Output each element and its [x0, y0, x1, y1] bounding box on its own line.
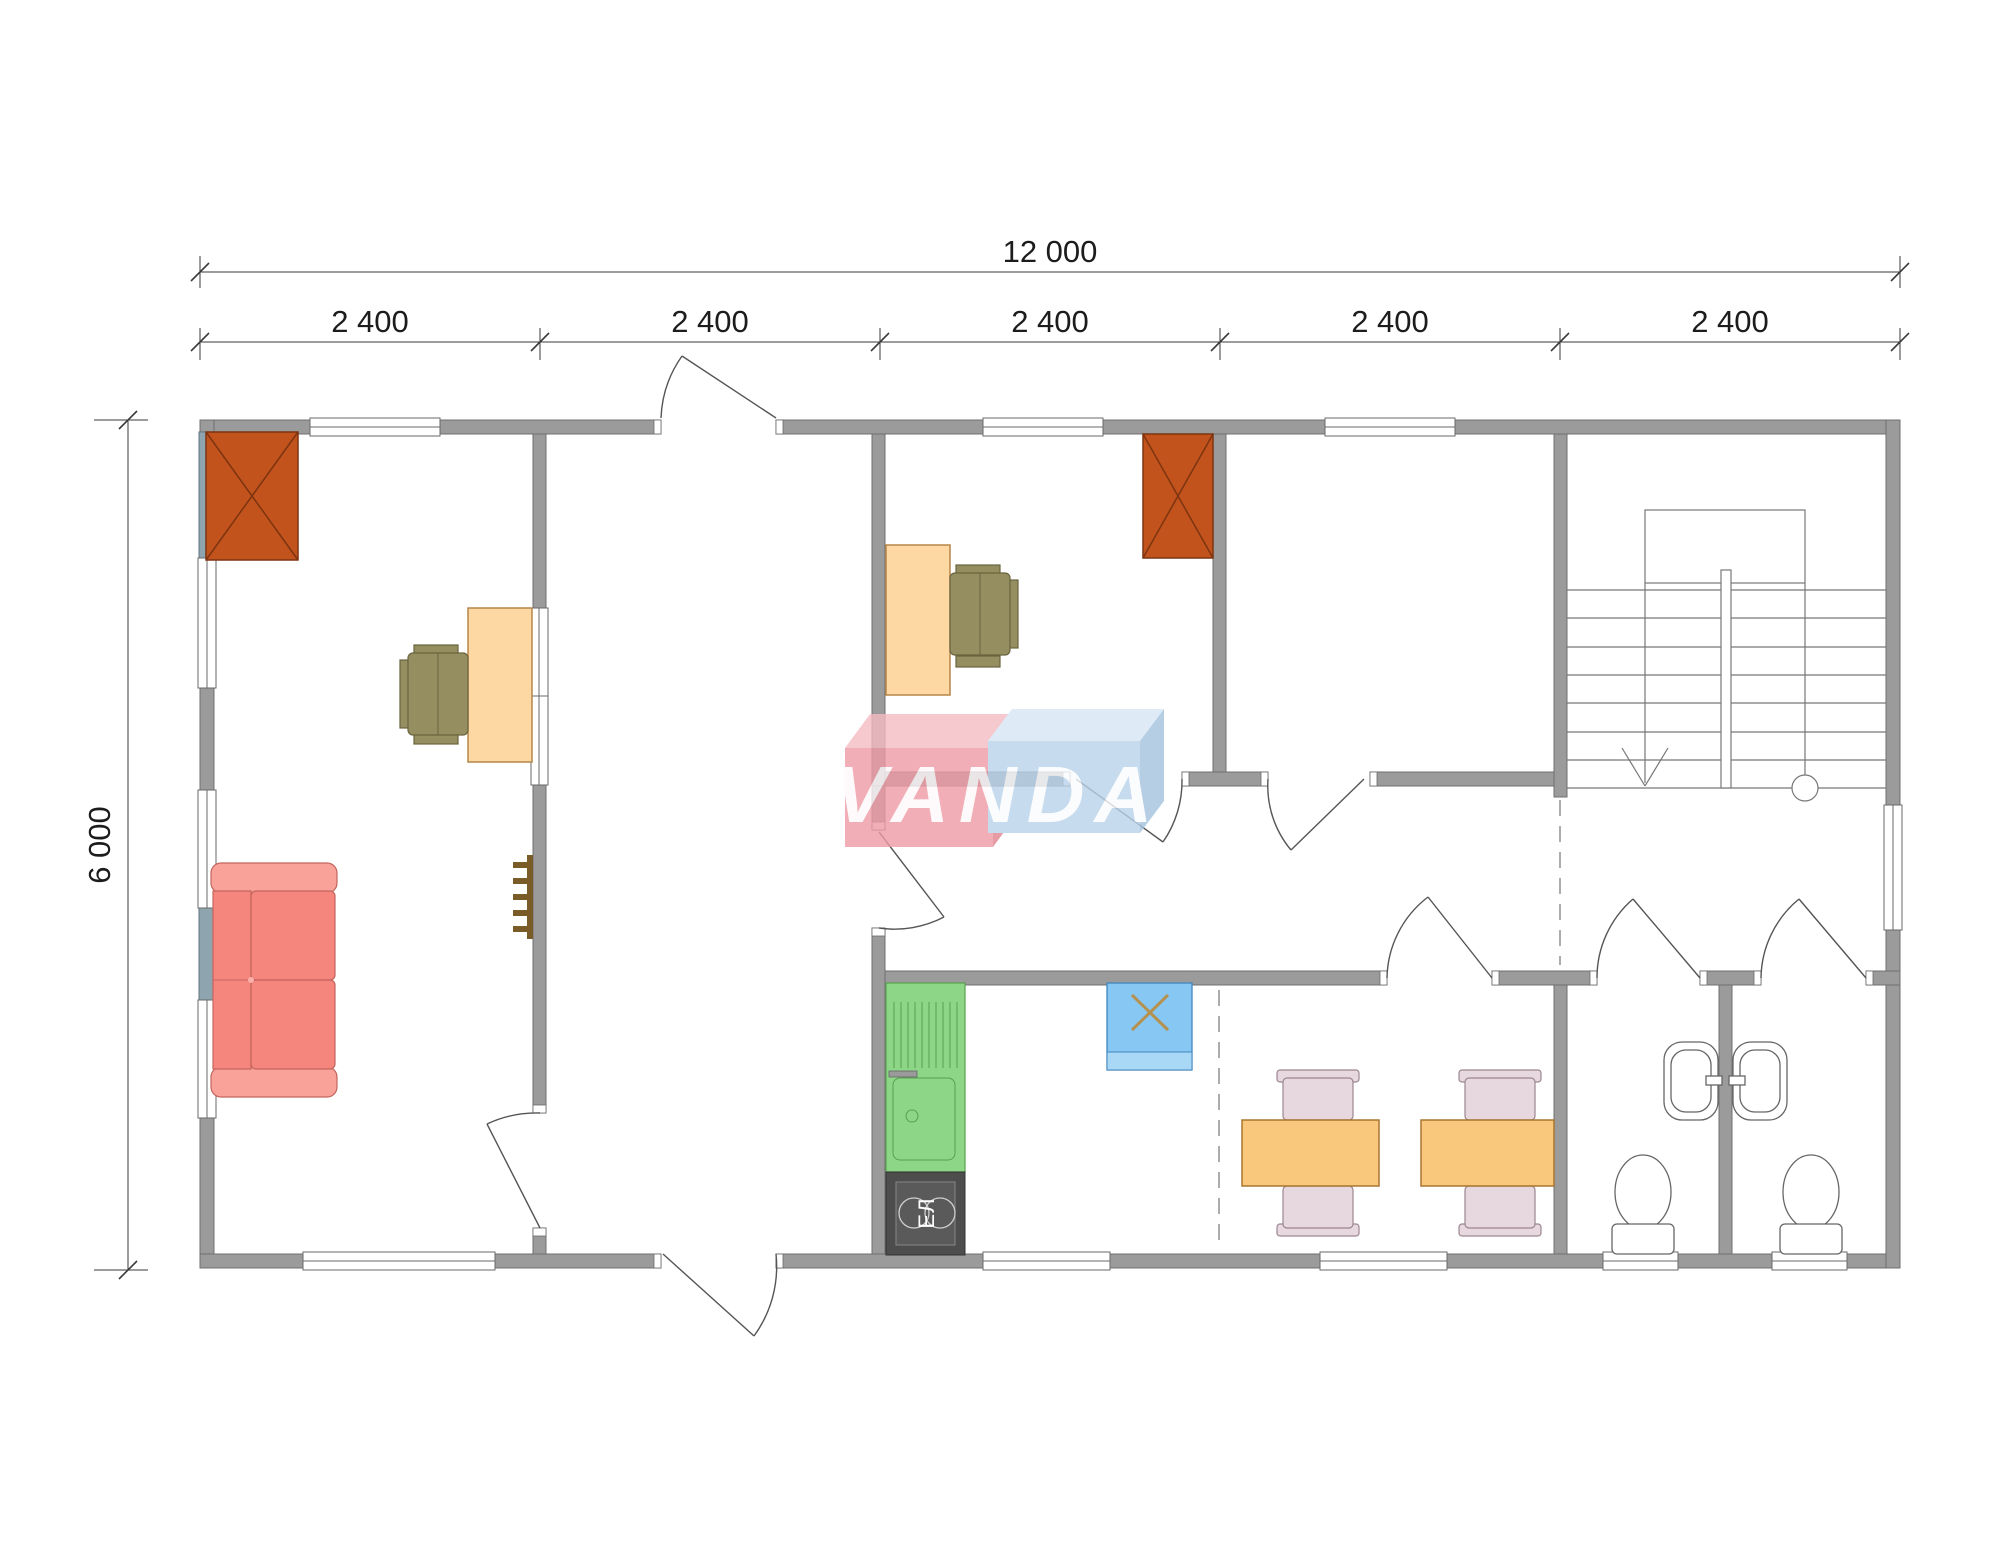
- office-chair-middle: [950, 565, 1018, 667]
- window-left-1: [198, 558, 216, 688]
- window-bottom-4: [1603, 1252, 1678, 1270]
- module-label-5: 2 400: [1691, 304, 1769, 339]
- floor-plan-drawing: 12 000 2 400 2 400 2 400 2 400 2 400 6 0…: [0, 0, 2000, 1563]
- window-top-1: [310, 418, 440, 436]
- dining-table-1: [1242, 1120, 1379, 1186]
- stove-label: ЕЛ: [914, 1197, 939, 1228]
- office-chair-left: [400, 645, 468, 744]
- window-bottom-5: [1772, 1252, 1847, 1270]
- window-bottom-1: [303, 1252, 495, 1270]
- overall-depth-label: 6 000: [82, 806, 117, 884]
- dimension-overall-width: 12 000: [191, 234, 1909, 288]
- window-top-3: [1325, 418, 1455, 436]
- sink-wc-2: [1729, 1042, 1787, 1120]
- dimension-overall-depth: 6 000: [82, 411, 148, 1279]
- logo-text: VANDA: [834, 750, 1163, 839]
- window-top-2: [983, 418, 1103, 436]
- wardrobe-middle: [1143, 434, 1213, 558]
- desk-middle: [886, 545, 950, 695]
- dining-table-2: [1421, 1120, 1554, 1186]
- coat-rack: [513, 855, 533, 939]
- window-right-1: [1884, 805, 1902, 930]
- window-left-2: [198, 790, 216, 908]
- overall-width-label: 12 000: [1003, 234, 1098, 269]
- entrance-door-top: [661, 356, 776, 418]
- stove: ЕЛ: [886, 1172, 965, 1255]
- vanda-watermark: VANDA: [834, 709, 1164, 847]
- module-label-3: 2 400: [1011, 304, 1089, 339]
- interior-window-partition: [531, 608, 548, 785]
- wardrobe-left: [206, 432, 298, 560]
- toilet-wc-2: [1780, 1155, 1842, 1254]
- module-label-4: 2 400: [1351, 304, 1429, 339]
- stair-divider: [1721, 570, 1731, 788]
- stair-newel-post: [1792, 775, 1818, 801]
- module-label-2: 2 400: [671, 304, 749, 339]
- sofa: [211, 863, 337, 1097]
- toilet-wc-1: [1612, 1155, 1674, 1254]
- kitchen-sink-unit: [886, 983, 965, 1172]
- window-bottom-3: [1320, 1252, 1447, 1270]
- desk-left: [468, 608, 532, 762]
- dimension-modules: 2 400 2 400 2 400 2 400 2 400: [191, 304, 1909, 360]
- kitchen-faucet: [889, 1071, 917, 1077]
- module-label-1: 2 400: [331, 304, 409, 339]
- sink-wc-1: [1664, 1042, 1722, 1120]
- floor-plan-canvas: 12 000 2 400 2 400 2 400 2 400 2 400 6 0…: [0, 0, 2000, 1563]
- window-bottom-2: [983, 1252, 1110, 1270]
- refrigerator: [1107, 983, 1192, 1070]
